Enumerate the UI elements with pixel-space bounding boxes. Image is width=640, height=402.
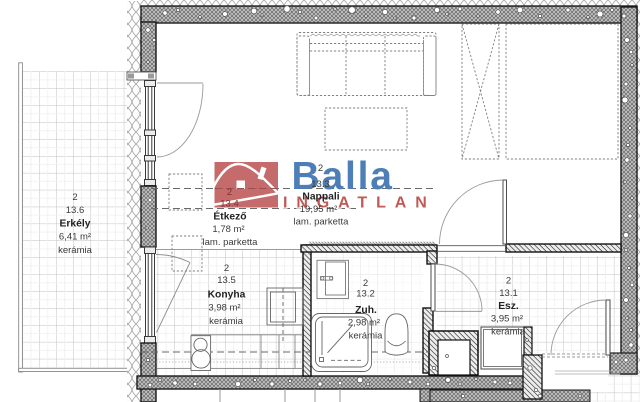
- svg-text:kerámia: kerámia: [209, 316, 244, 327]
- svg-text:3,95 m²: 3,95 m²: [491, 314, 523, 325]
- svg-text:13.5: 13.5: [217, 275, 236, 286]
- svg-text:13.2: 13.2: [356, 289, 375, 300]
- svg-text:kerámia: kerámia: [349, 331, 384, 342]
- svg-text:Erkély: Erkély: [60, 219, 91, 230]
- svg-text:2: 2: [506, 276, 511, 287]
- svg-text:2: 2: [224, 263, 229, 274]
- svg-text:Esz.: Esz.: [498, 301, 519, 312]
- svg-text:13.4: 13.4: [220, 199, 239, 210]
- svg-text:Zuh.: Zuh.: [355, 305, 377, 316]
- svg-text:3,98 m²: 3,98 m²: [208, 303, 240, 314]
- svg-text:13.6: 13.6: [66, 205, 85, 216]
- svg-text:Étkező: Étkező: [213, 210, 246, 223]
- svg-text:Konyha: Konyha: [208, 290, 246, 301]
- svg-text:kerámia: kerámia: [491, 327, 526, 338]
- svg-text:Nappali: Nappali: [302, 191, 339, 202]
- svg-text:13.1: 13.1: [499, 288, 518, 299]
- svg-text:13.3: 13.3: [311, 179, 330, 190]
- svg-text:2: 2: [72, 192, 77, 203]
- svg-text:lam. parketta: lam. parketta: [294, 216, 350, 227]
- svg-text:2: 2: [227, 187, 232, 198]
- svg-text:1,78 m²: 1,78 m²: [212, 224, 244, 235]
- svg-text:2,98 m²: 2,98 m²: [348, 318, 380, 329]
- svg-text:2: 2: [363, 278, 368, 289]
- svg-text:2: 2: [318, 163, 323, 174]
- svg-text:6,41 m²: 6,41 m²: [59, 232, 91, 243]
- svg-text:kerámia: kerámia: [58, 245, 93, 256]
- svg-text:lam. parketta: lam. parketta: [203, 237, 259, 248]
- svg-text:19,95 m²: 19,95 m²: [300, 204, 338, 215]
